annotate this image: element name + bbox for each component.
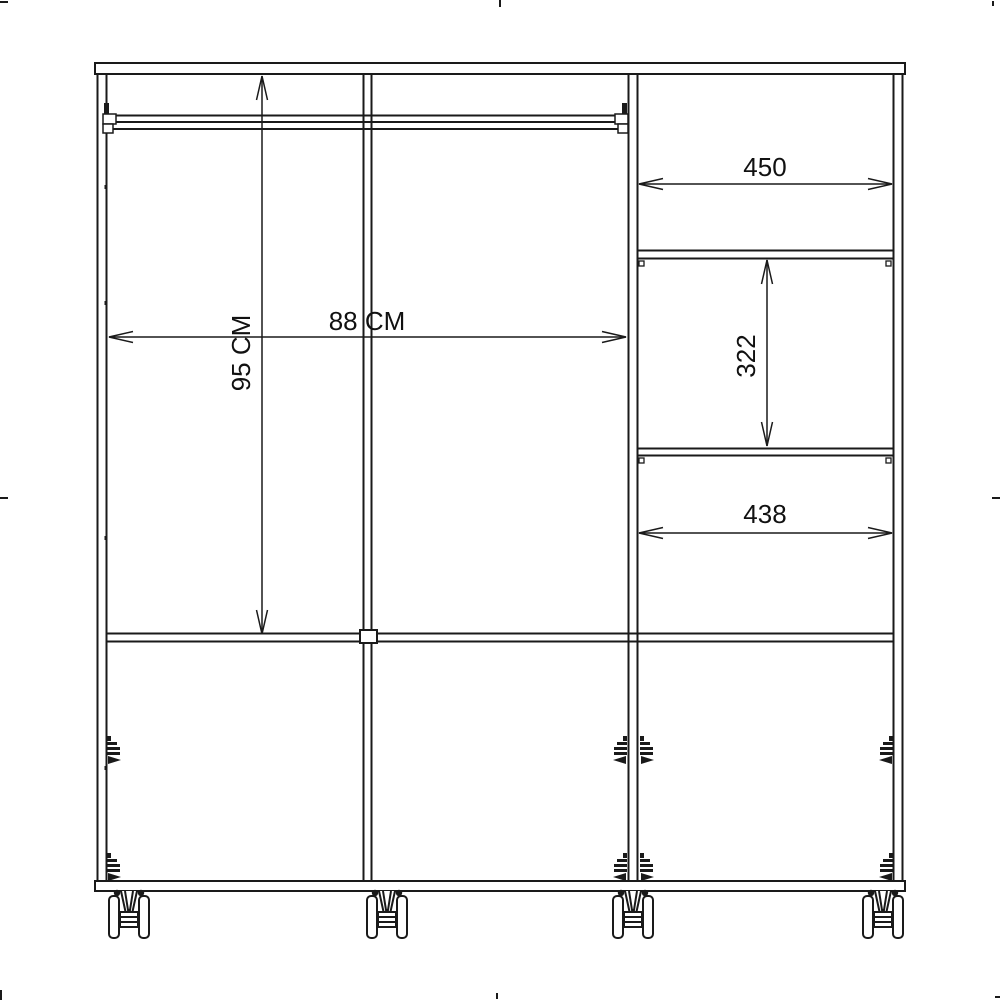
hinge-icon [107,853,121,881]
caster-wheel-icon [863,890,903,938]
right-middle-shelf [637,449,894,464]
dimension-width-450: 450 [639,152,892,190]
hinge-icon [613,736,627,764]
hinge-icon [879,736,893,764]
dimension-width-438: 438 [639,499,892,539]
top-panel [95,63,905,74]
wardrobe-carcass [95,63,905,891]
dimension-width-88cm: 88 CM [109,306,626,343]
casters [109,890,903,938]
center-divider-panel [364,74,372,881]
caster-wheel-icon [367,890,407,938]
shelf-pin-icon [639,458,644,463]
wardrobe-diagram: 95 CM 88 CM 450 322 438 [0,0,1000,1000]
shelf-divider-connector [360,630,377,643]
hinge-icon [640,736,654,764]
right-divider-panel [629,74,638,881]
left-side-panel [98,74,107,881]
bottom-panel [95,881,905,891]
dimension-label-95cm: 95 CM [226,315,256,392]
shelf-pin-icon [639,261,644,266]
dimension-label-88cm: 88 CM [329,306,406,336]
dimension-label-322: 322 [731,334,761,377]
hanging-rail [103,103,628,133]
caster-wheel-icon [613,890,653,938]
dimension-height-322: 322 [731,260,773,446]
shelf-pin-icon [886,458,891,463]
technical-drawing-canvas: 95 CM 88 CM 450 322 438 [0,0,1000,1000]
door-hinges [107,736,893,881]
dimension-label-450: 450 [743,152,786,182]
dimension-height-95cm: 95 CM [226,76,268,634]
dimension-label-438: 438 [743,499,786,529]
caster-wheel-icon [109,890,149,938]
hinge-icon [107,736,121,764]
hinge-icon [640,853,654,881]
hinge-icon [613,853,627,881]
bottom-shelf [107,630,894,643]
shelf-pin-icon [886,261,891,266]
right-side-panel [894,74,903,881]
crop-marks [0,0,1000,1000]
hinge-icon [879,853,893,881]
